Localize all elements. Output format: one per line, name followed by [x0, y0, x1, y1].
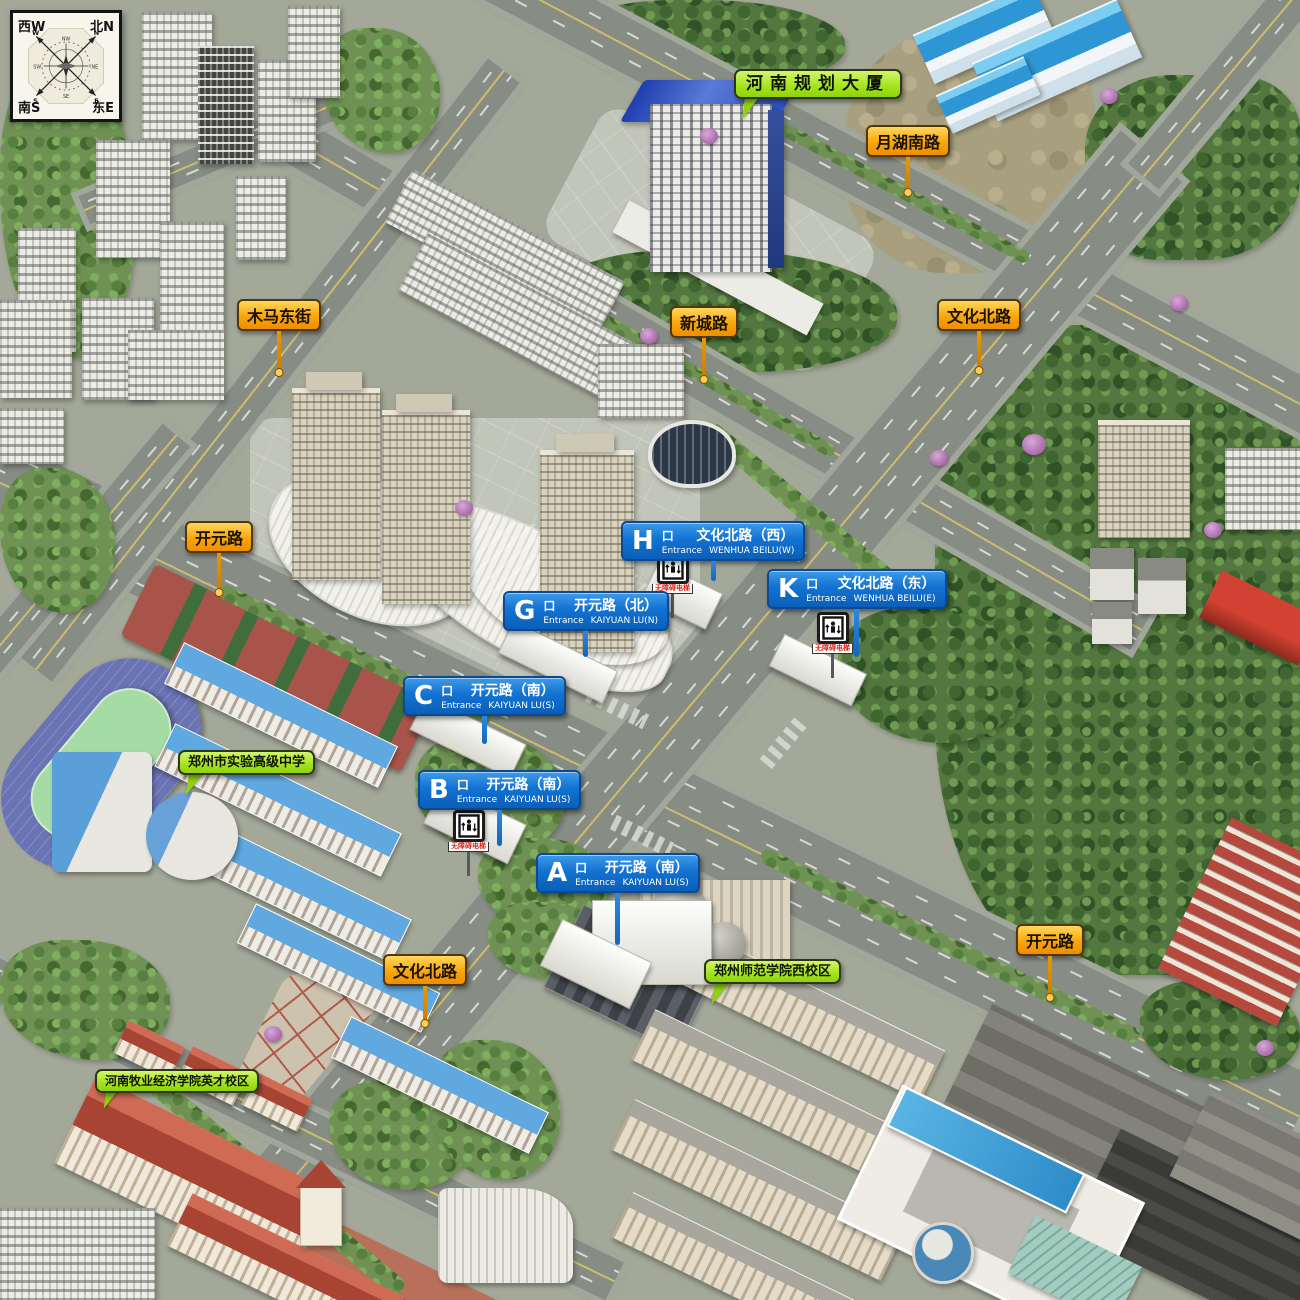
- entrance-word: Entrance: [662, 546, 702, 556]
- map-canvas: 无障碍电梯 无障碍电梯 无障碍电梯 H 口文化北路（西） EntranceWEN…: [0, 0, 1300, 1300]
- road-label-yuehu-nan-lu[interactable]: 月湖南路: [866, 125, 950, 193]
- road-label-wenhua-beilu-south[interactable]: 文化北路: [383, 954, 467, 1024]
- entrance-road-en: KAIYUAN LU(S): [504, 795, 570, 805]
- tower-crown: [556, 434, 614, 452]
- tower-roof: [296, 1160, 346, 1188]
- tower-crown: [306, 372, 362, 390]
- purple-tree: [1022, 434, 1046, 455]
- road-label-stem: [1048, 956, 1052, 998]
- place-label-text: 郑州市实验高级中学: [178, 750, 315, 775]
- tower-crown: [396, 394, 452, 412]
- sign-pole: [467, 852, 470, 876]
- entrance-road-cn: 文化北路（东）: [838, 573, 936, 593]
- compass-rose-se: SE: [63, 94, 69, 100]
- purple-tree: [1100, 88, 1118, 104]
- compass: 西W 北N 南S 东E N W S E NW SE SW NE: [10, 10, 122, 122]
- residential-tower: [292, 388, 380, 580]
- round-plaza: [912, 1222, 974, 1284]
- road-label-kaiyuan-lu-west[interactable]: 开元路: [185, 521, 253, 593]
- purple-tree: [1170, 295, 1188, 311]
- place-label-henan-planning-tower[interactable]: 河南规划大厦: [734, 69, 902, 94]
- entrance-road-en: KAIYUAN LU(S): [622, 878, 688, 888]
- small-building: [1138, 558, 1186, 614]
- compass-rose-n: N: [94, 29, 99, 37]
- entrance-word: Entrance: [457, 795, 497, 805]
- entrance-sign-panel: K 口文化北路（东） EntranceWENHUA BEILU(E): [767, 569, 947, 609]
- entrance-road-cn: 开元路（南）: [486, 774, 570, 794]
- entrance-road-en: WENHUA BEILU(E): [853, 594, 935, 604]
- small-building: [1090, 548, 1134, 600]
- road-label-stem: [423, 986, 427, 1024]
- round-glass-building: [648, 420, 736, 488]
- gate-character: 口: [806, 575, 818, 592]
- entrance-word: Entrance: [441, 701, 481, 711]
- entrance-letter: C: [414, 683, 433, 709]
- entrance-letter: A: [547, 860, 567, 886]
- compass-rose-w: W: [32, 29, 39, 37]
- crosswalk: [760, 713, 811, 769]
- building: [438, 1188, 573, 1283]
- sign-stem: [711, 561, 716, 581]
- entrance-sign-a[interactable]: A 口开元路（南） EntranceKAIYUAN LU(S): [536, 853, 700, 945]
- road-label-text: 文化北路: [937, 299, 1021, 331]
- road-label-text: 文化北路: [383, 954, 467, 986]
- entrance-road-cn: 开元路（北）: [574, 595, 658, 615]
- small-building: [1092, 602, 1132, 644]
- office-building: [0, 300, 72, 398]
- round-hall: [146, 792, 238, 880]
- gate-character: 口: [457, 776, 469, 793]
- entrance-sign-panel: A 口开元路（南） EntranceKAIYUAN LU(S): [536, 853, 700, 893]
- gymnasium: [52, 752, 152, 872]
- road-label-stem: [906, 157, 910, 193]
- entrance-sign-panel: G 口开元路（北） EntranceKAIYUAN LU(N): [503, 591, 669, 631]
- purple-tree: [700, 128, 718, 144]
- place-label-normal-university-west-campus[interactable]: 郑州师范学院西校区: [704, 960, 841, 979]
- sign-stem: [854, 609, 859, 657]
- office-building: [0, 408, 64, 464]
- entrance-road-cn: 文化北路（西）: [696, 525, 794, 545]
- road-label-xincheng-lu[interactable]: 新城路: [670, 306, 738, 380]
- entrance-road-cn: 开元路（南）: [605, 857, 689, 877]
- entrance-sign-b[interactable]: B 口开元路（南） EntranceKAIYUAN LU(S): [418, 770, 581, 846]
- place-label-animal-husbandry-campus[interactable]: 河南牧业经济学院英才校区: [95, 1070, 259, 1089]
- road-label-text: 开元路: [185, 521, 253, 553]
- office-tower: [96, 140, 170, 258]
- entrance-letter: K: [778, 576, 798, 602]
- sign-stem: [583, 631, 588, 657]
- purple-tree: [1256, 1040, 1274, 1056]
- office-tower: [236, 176, 286, 260]
- road-label-stem: [217, 553, 221, 593]
- building: [1225, 448, 1300, 530]
- compass-rose: N W S E NW SE SW NE: [26, 26, 106, 106]
- compass-rose-s: S: [33, 97, 38, 105]
- sign-pole: [671, 594, 674, 618]
- clock-tower: [300, 1186, 342, 1246]
- place-label-experimental-high-school[interactable]: 郑州市实验高级中学: [178, 751, 315, 770]
- road-label-stem: [702, 338, 706, 380]
- road-label-text: 新城路: [670, 306, 738, 338]
- purple-tree: [1204, 522, 1222, 538]
- road-label-text: 月湖南路: [866, 125, 950, 157]
- gate-character: 口: [441, 682, 453, 699]
- office-tower: [160, 222, 224, 330]
- apartment-building: [1098, 420, 1190, 538]
- place-label-text: 河南规划大厦: [734, 69, 902, 99]
- entrance-letter: B: [429, 777, 449, 803]
- planning-tower-blue-edge: [768, 110, 784, 268]
- road-label-wenhua-beilu-north[interactable]: 文化北路: [937, 299, 1021, 371]
- sign-pole: [831, 654, 834, 678]
- entrance-letter: H: [632, 528, 654, 554]
- entrance-sign-panel: H 口文化北路（西） EntranceWENHUA BEILU(W): [621, 521, 805, 561]
- entrance-road-en: KAIYUAN LU(S): [488, 701, 554, 711]
- entrance-road-en: KAIYUAN LU(N): [591, 616, 658, 626]
- purple-tree: [455, 500, 473, 516]
- entrance-sign-panel: B 口开元路（南） EntranceKAIYUAN LU(S): [418, 770, 581, 810]
- gate-character: 口: [662, 527, 674, 544]
- entrance-sign-k[interactable]: K 口文化北路（东） EntranceWENHUA BEILU(E): [767, 569, 947, 657]
- office-building: [128, 330, 224, 400]
- purple-tree: [640, 328, 658, 344]
- compass-rose-ne: NE: [91, 64, 98, 70]
- purple-tree: [264, 1026, 282, 1042]
- entrance-word: Entrance: [575, 878, 615, 888]
- entrance-sign-c[interactable]: C 口开元路（南） EntranceKAIYUAN LU(S): [403, 676, 566, 744]
- office-tower: [288, 6, 340, 98]
- road-label-stem: [977, 331, 981, 371]
- compass-rose-e: E: [94, 97, 98, 105]
- trees: [0, 468, 115, 613]
- entrance-sign-g[interactable]: G 口开元路（北） EntranceKAIYUAN LU(N): [503, 591, 669, 657]
- entrance-word: Entrance: [543, 616, 583, 626]
- road-label-text: 开元路: [1016, 924, 1084, 956]
- compass-rose-sw: SW: [33, 64, 41, 70]
- entrance-sign-panel: C 口开元路（南） EntranceKAIYUAN LU(S): [403, 676, 566, 716]
- gate-character: 口: [575, 859, 587, 876]
- entrance-letter: G: [514, 598, 535, 624]
- place-label-text: 河南牧业经济学院英才校区: [95, 1069, 259, 1093]
- compass-rose-nw: NW: [62, 36, 71, 42]
- entrance-word: Entrance: [806, 594, 846, 604]
- gate-character: 口: [543, 597, 555, 614]
- road-label-kaiyuan-lu-east[interactable]: 开元路: [1016, 924, 1084, 998]
- sign-stem: [482, 716, 487, 744]
- sign-stem: [497, 810, 502, 846]
- building: [0, 1208, 155, 1300]
- entrance-road-cn: 开元路（南）: [471, 680, 555, 700]
- road-label-muma-dongjie[interactable]: 木马东街: [237, 299, 321, 373]
- purple-tree: [930, 450, 948, 466]
- road-label-text: 木马东街: [237, 299, 321, 331]
- sign-stem: [615, 893, 620, 945]
- place-label-text: 郑州师范学院西校区: [704, 959, 841, 984]
- office-tower: [198, 46, 254, 164]
- entrance-road-en: WENHUA BEILU(W): [709, 546, 794, 556]
- road-label-stem: [277, 331, 281, 373]
